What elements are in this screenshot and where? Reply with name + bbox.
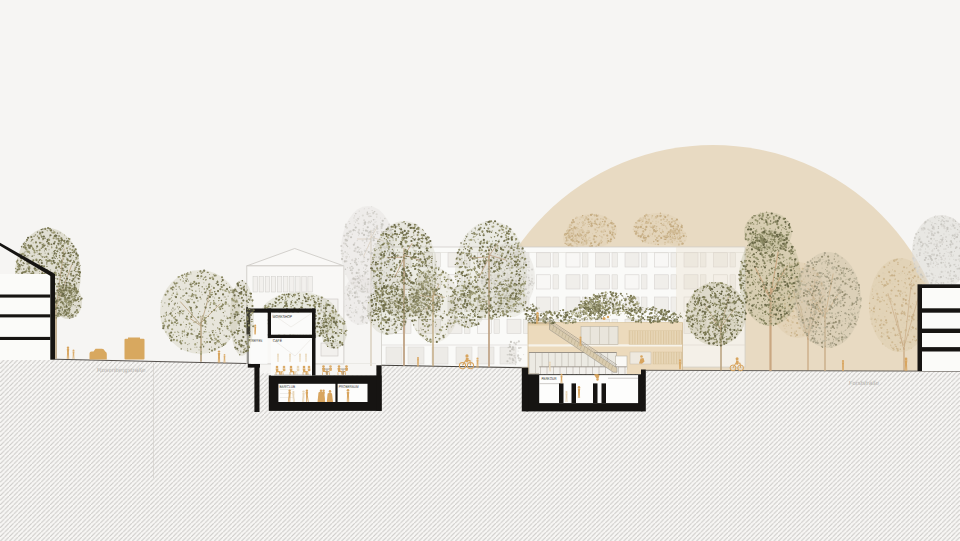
svg-text:WORKSHOP: WORKSHOP xyxy=(273,314,293,319)
svg-text:BAR/CLUB: BAR/CLUB xyxy=(280,384,296,389)
svg-text:PARKOUR: PARKOUR xyxy=(542,376,557,381)
svg-text:Rosenbergstraße: Rosenbergstraße xyxy=(97,367,146,374)
svg-text:Forststraße: Forststraße xyxy=(849,380,880,387)
svg-text:PROBERAUM: PROBERAUM xyxy=(339,384,359,389)
svg-text:CAFÉ: CAFÉ xyxy=(273,338,282,343)
